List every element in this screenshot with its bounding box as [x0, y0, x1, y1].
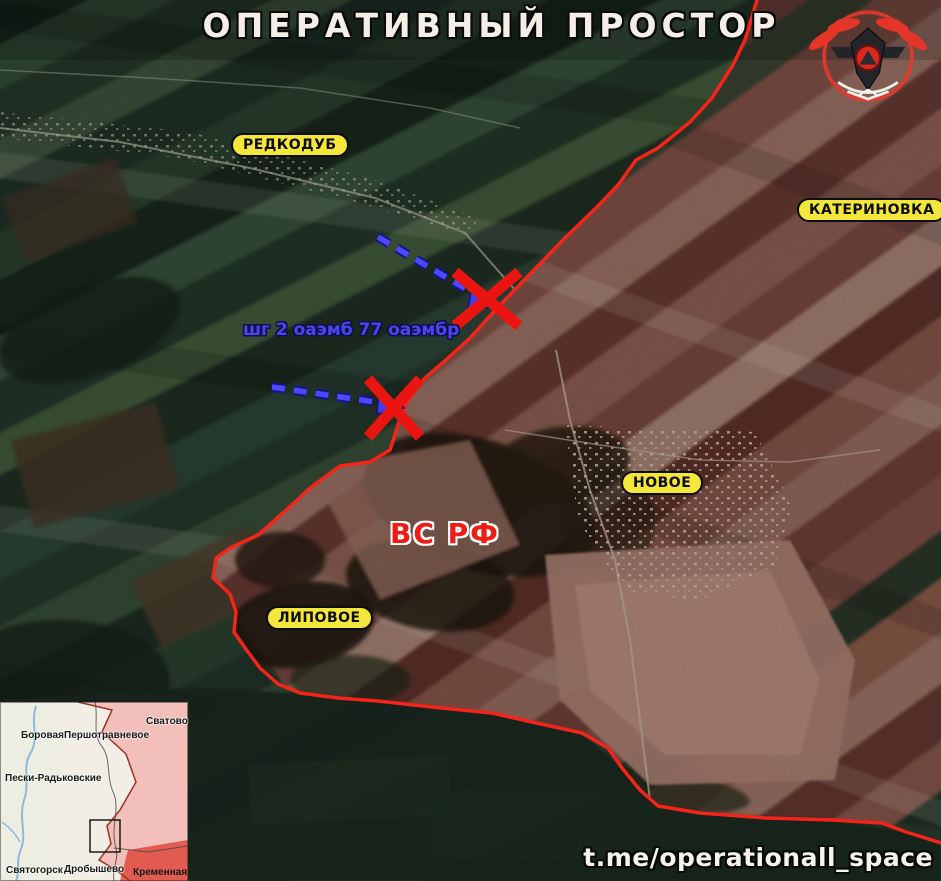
settlement-label-novoe: НОВОЕ [621, 471, 703, 495]
unit-annotation: шг 2 оаэмб 77 оаэмбр [243, 320, 459, 340]
inset-label-kremennaya: Кременная [133, 867, 187, 878]
inset-label-pershotravnevoe: Першотравневое [64, 730, 149, 741]
inset-label-borovaya: Боровая [21, 730, 64, 741]
inset-label-svatovo: Сватово [146, 716, 188, 727]
war-map-image: ОПЕРАТИВНЫЙ ПРОСТОР t.me/operationall_sp… [0, 0, 941, 881]
inset-label-peski-radkovskie: Пески-Радьковские [5, 773, 101, 784]
settlement-label-redkodub: РЕДКОДУБ [231, 133, 349, 157]
watermark-channel-url: t.me/operationall_space [583, 843, 933, 872]
inset-label-drobyshevo: Дробышево [64, 864, 124, 875]
inset-label-svyatogorsk: Святогорск [6, 865, 63, 876]
settlement-label-lipovoe: ЛИПОВОЕ [266, 606, 373, 630]
forces-annotation: ВС РФ [390, 517, 500, 550]
inset-overview-map [0, 702, 188, 881]
map-title: ОПЕРАТИВНЫЙ ПРОСТОР [21, 6, 941, 45]
settlement-label-katerinovka: КАТЕРИНОВКА [797, 198, 941, 222]
